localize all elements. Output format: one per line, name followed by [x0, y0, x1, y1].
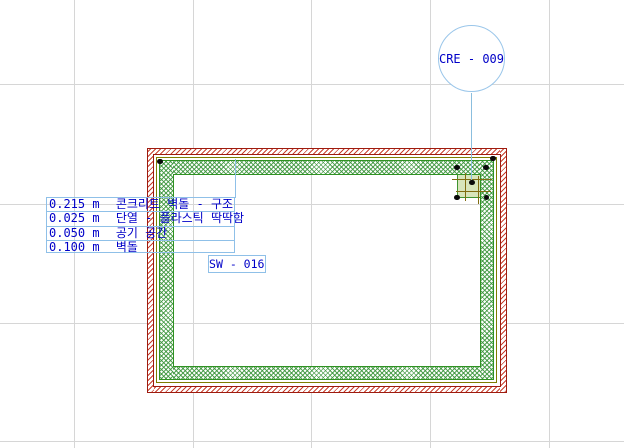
wall-endpoint-handle[interactable]: [157, 159, 163, 165]
layer-thickness: 0.215 m: [49, 197, 100, 211]
layer-material: 단열 - 플라스틱 딱딱함: [116, 211, 244, 225]
wall-layer-row: 0.025 m 단열 - 플라스틱 딱딱함: [47, 212, 234, 226]
grid-line-horizontal: [0, 441, 624, 442]
wall-id-text: SW - 016: [209, 257, 264, 271]
wall-layer-row: 0.050 m 공기 공간: [47, 227, 234, 242]
grid-line-vertical: [549, 0, 550, 448]
layer-material: 공기 공간: [116, 226, 167, 240]
wall-id-tag[interactable]: SW - 016: [208, 255, 266, 273]
wall-endpoint-handle[interactable]: [490, 156, 496, 162]
callout-leader-line: [471, 93, 472, 183]
layer-material: 콘크리트 벽돌 - 구조: [116, 197, 233, 211]
layer-material: 벽돌: [116, 240, 138, 254]
column-corner-handle[interactable]: [484, 195, 490, 201]
column-corner-handle[interactable]: [454, 195, 460, 201]
label-leader-line: [235, 159, 236, 198]
column-core-line: [478, 176, 479, 204]
column-core-line: [465, 173, 466, 202]
column-corner-handle[interactable]: [454, 165, 460, 171]
column-callout-text: CRE - 009: [439, 52, 504, 66]
wall-layer-row: 0.215 m 콘크리트 벽돌 - 구조: [47, 198, 234, 212]
grid-line-horizontal: [0, 84, 624, 85]
layer-thickness: 0.025 m: [49, 211, 100, 225]
wall-layers-label[interactable]: 0.215 m 콘크리트 벽돌 - 구조 0.025 m 단열 - 플라스틱 딱…: [46, 197, 235, 253]
column-callout[interactable]: CRE - 009: [438, 25, 505, 92]
drawing-canvas[interactable]: CRE - 009 0.215 m 콘크리트 벽돌 - 구조 0.025 m 단…: [0, 0, 624, 448]
layer-thickness: 0.100 m: [49, 240, 100, 254]
column-corner-handle[interactable]: [483, 165, 489, 171]
wall-layer-row: 0.100 m 벽돌: [47, 241, 234, 252]
column-core-line: [456, 191, 491, 192]
column-center-handle[interactable]: [469, 180, 475, 186]
layer-thickness: 0.050 m: [49, 226, 100, 240]
